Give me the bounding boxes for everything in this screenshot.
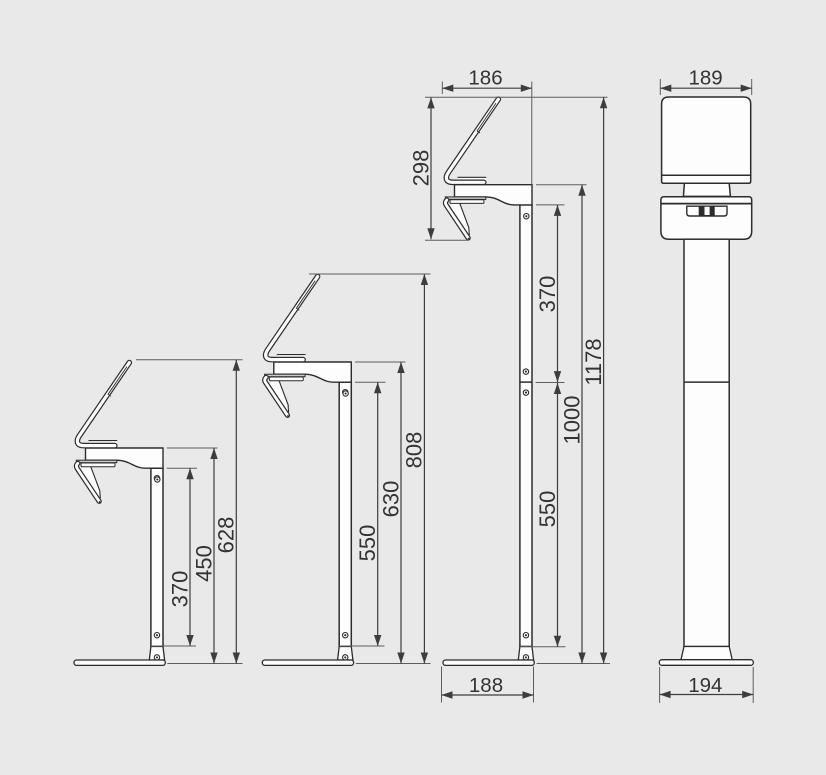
svg-text:1178: 1178 [581, 338, 606, 385]
svg-text:628: 628 [214, 517, 239, 554]
svg-text:550: 550 [355, 525, 380, 562]
svg-text:808: 808 [402, 432, 427, 469]
svg-text:189: 189 [688, 67, 722, 90]
svg-text:186: 186 [468, 67, 502, 90]
svg-text:188: 188 [469, 674, 503, 697]
svg-text:298: 298 [408, 150, 433, 187]
svg-text:370: 370 [535, 276, 560, 313]
svg-text:630: 630 [378, 481, 403, 518]
svg-text:550: 550 [535, 491, 560, 528]
svg-text:370: 370 [167, 571, 192, 608]
svg-text:1000: 1000 [559, 396, 584, 445]
svg-text:194: 194 [688, 674, 722, 697]
svg-text:450: 450 [191, 545, 216, 582]
